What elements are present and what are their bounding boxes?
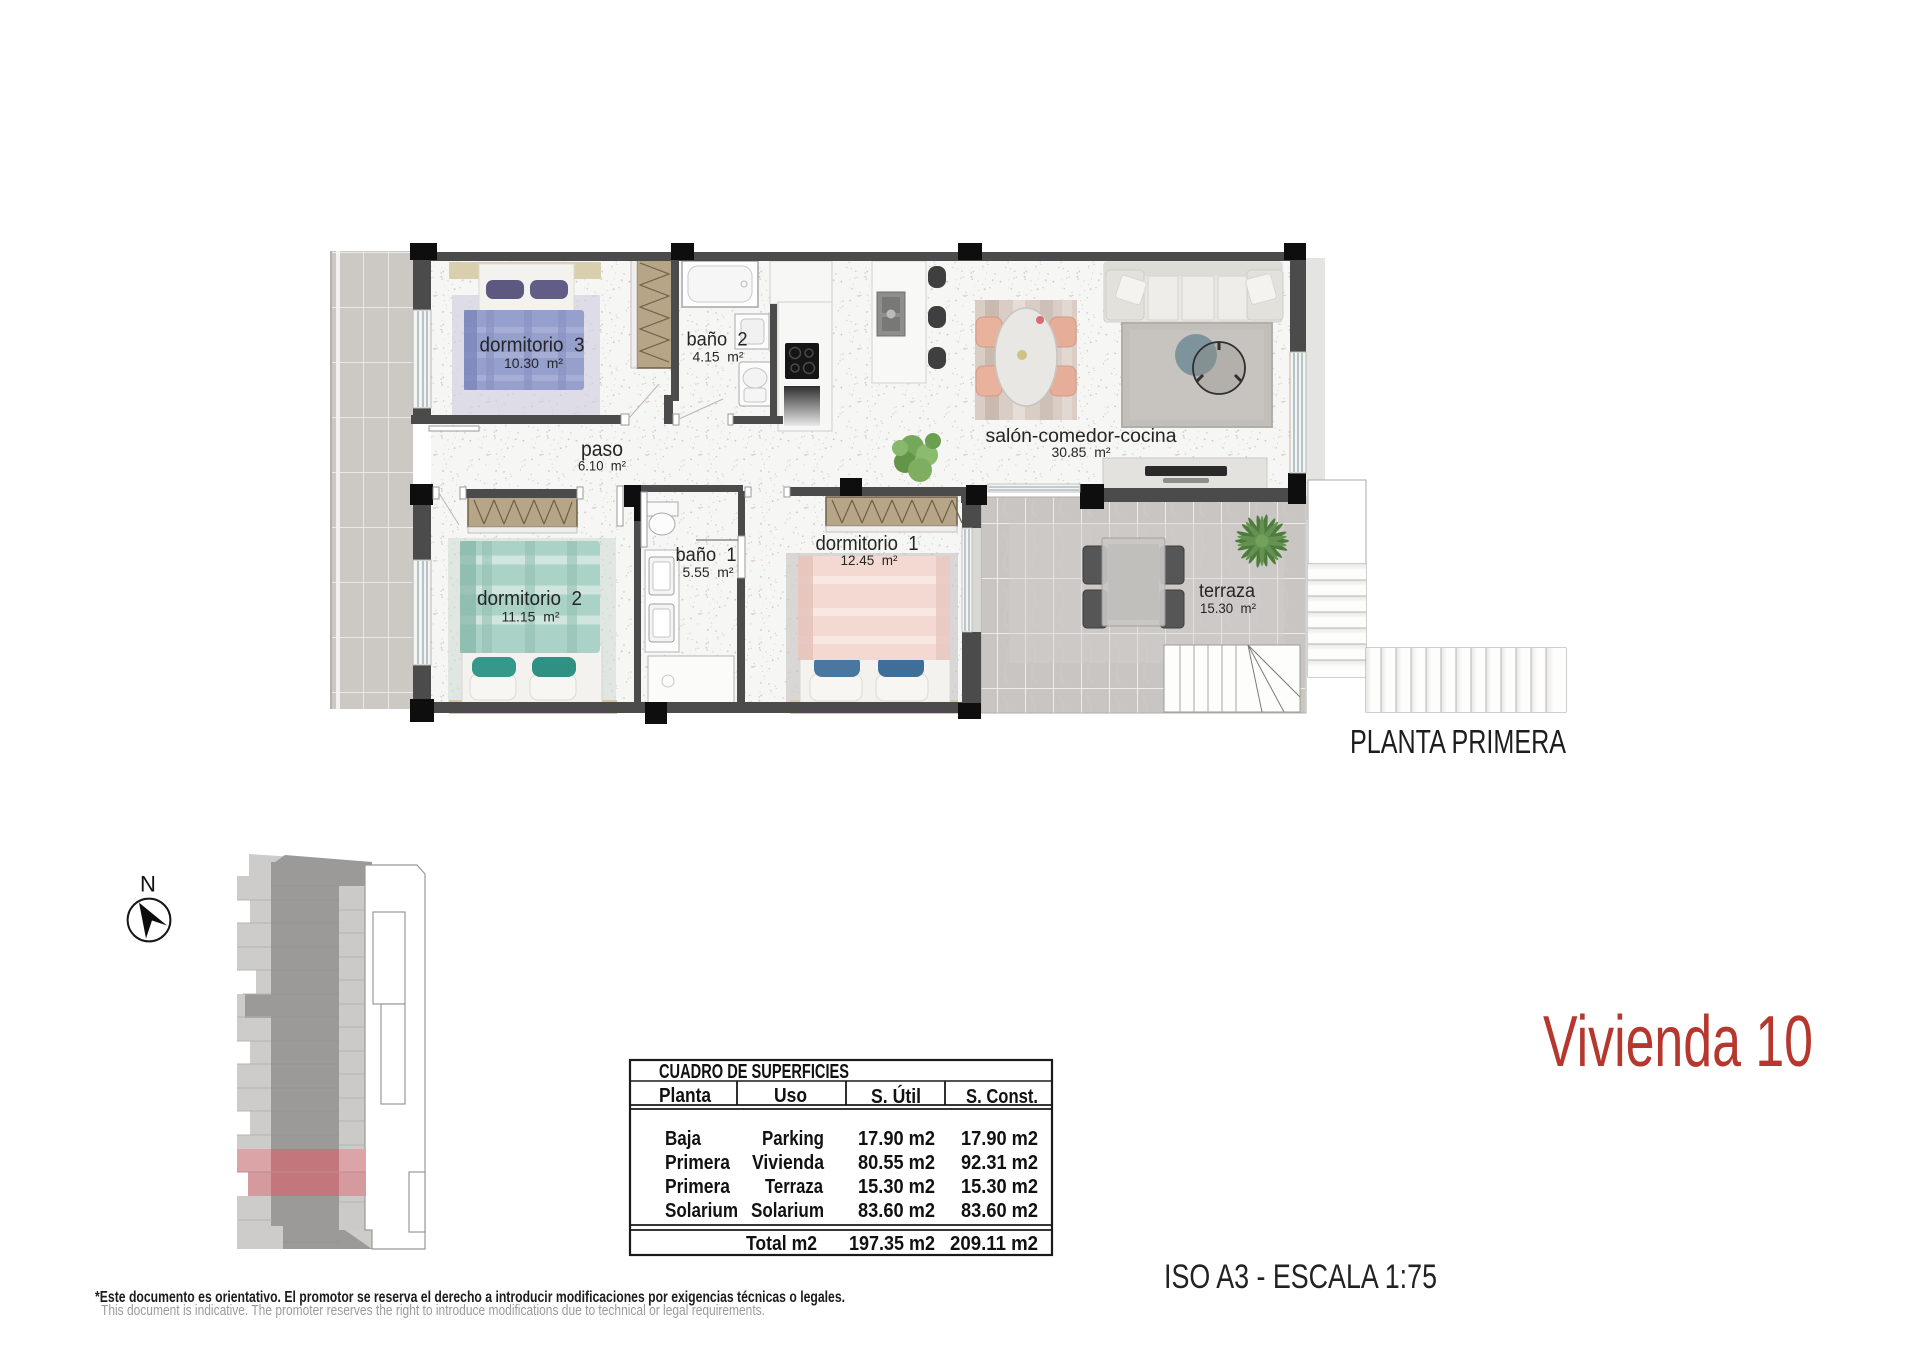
svg-text:209.11 m2: 209.11 m2	[950, 1233, 1038, 1255]
svg-text:baño 1: baño 1	[676, 545, 737, 566]
svg-text:Vivienda 10: Vivienda 10	[1543, 1002, 1813, 1082]
svg-text:83.60 m2: 83.60 m2	[961, 1200, 1038, 1222]
svg-text:S. Útil: S. Útil	[871, 1084, 921, 1108]
svg-text:17.90 m2: 17.90 m2	[858, 1128, 935, 1150]
svg-text:Parking: Parking	[762, 1128, 824, 1150]
svg-text:dormitorio 2: dormitorio 2	[477, 588, 582, 610]
svg-text:ISO A3 - ESCALA 1:75: ISO A3 - ESCALA 1:75	[1164, 1258, 1437, 1296]
svg-text:salón-comedor-cocina: salón-comedor-cocina	[986, 426, 1177, 447]
svg-text:15.30 m2: 15.30 m2	[858, 1176, 935, 1198]
svg-text:6.10 m²: 6.10 m²	[578, 458, 626, 474]
svg-text:80.55 m2: 80.55 m2	[858, 1152, 935, 1174]
svg-text:15.30 m2: 15.30 m2	[961, 1176, 1038, 1198]
svg-text:S. Const.: S. Const.	[966, 1086, 1038, 1108]
svg-text:Uso: Uso	[774, 1085, 807, 1107]
svg-text:10.30 m²: 10.30 m²	[504, 355, 563, 371]
svg-text:11.15 m²: 11.15 m²	[502, 609, 560, 625]
svg-text:15.30 m²: 15.30 m²	[1200, 600, 1256, 616]
svg-text:This document is indicative. T: This document is indicative. The promote…	[101, 1302, 765, 1319]
svg-text:12.45 m²: 12.45 m²	[841, 552, 898, 568]
svg-text:dormitorio 3: dormitorio 3	[480, 335, 585, 357]
svg-text:baño 2: baño 2	[687, 330, 748, 351]
svg-text:PLANTA PRIMERA: PLANTA PRIMERA	[1350, 723, 1566, 760]
svg-text:Primera: Primera	[665, 1152, 731, 1174]
svg-text:CUADRO DE SUPERFICIES: CUADRO DE SUPERFICIES	[659, 1061, 849, 1083]
svg-text:92.31 m2: 92.31 m2	[961, 1152, 1038, 1174]
svg-text:Primera: Primera	[665, 1176, 731, 1198]
svg-text:197.35 m2: 197.35 m2	[849, 1233, 935, 1255]
svg-text:5.55 m²: 5.55 m²	[683, 565, 735, 580]
svg-text:83.60 m2: 83.60 m2	[858, 1200, 935, 1222]
svg-text:terraza: terraza	[1199, 581, 1255, 602]
svg-text:Solarium: Solarium	[751, 1200, 824, 1222]
svg-text:Solarium: Solarium	[665, 1200, 738, 1222]
svg-text:N: N	[140, 872, 156, 897]
svg-text:30.85 m²: 30.85 m²	[1052, 445, 1112, 460]
svg-text:Total m2: Total m2	[746, 1233, 817, 1255]
svg-text:Planta: Planta	[659, 1085, 712, 1107]
svg-text:Baja: Baja	[665, 1128, 702, 1150]
svg-text:4.15 m²: 4.15 m²	[693, 350, 745, 365]
svg-text:Vivienda: Vivienda	[752, 1152, 825, 1174]
svg-text:17.90 m2: 17.90 m2	[961, 1128, 1038, 1150]
svg-text:Terraza: Terraza	[765, 1176, 824, 1198]
